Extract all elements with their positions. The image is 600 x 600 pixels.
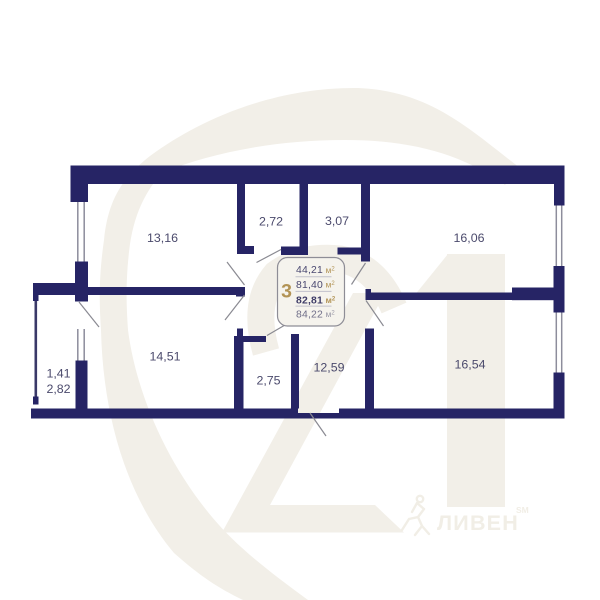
svg-text:84,22: 84,22 — [296, 309, 323, 320]
svg-text:1,41: 1,41 — [46, 367, 70, 381]
svg-text:16,54: 16,54 — [454, 358, 485, 372]
svg-text:82,81: 82,81 — [296, 295, 323, 306]
svg-text:81,40: 81,40 — [296, 280, 323, 291]
svg-text:3,07: 3,07 — [325, 214, 349, 228]
svg-text:2,72: 2,72 — [259, 215, 283, 229]
svg-text:ЛИВЕН: ЛИВЕН — [437, 511, 519, 535]
svg-text:SM: SM — [516, 505, 529, 515]
svg-text:2,75: 2,75 — [256, 374, 280, 388]
svg-text:14,51: 14,51 — [149, 350, 180, 364]
svg-text:3: 3 — [281, 281, 292, 303]
svg-text:44,21: 44,21 — [296, 265, 323, 276]
svg-text:13,16: 13,16 — [147, 231, 178, 245]
svg-text:2,82: 2,82 — [46, 382, 70, 396]
svg-text:16,06: 16,06 — [453, 231, 484, 245]
svg-text:12,59: 12,59 — [313, 361, 344, 375]
